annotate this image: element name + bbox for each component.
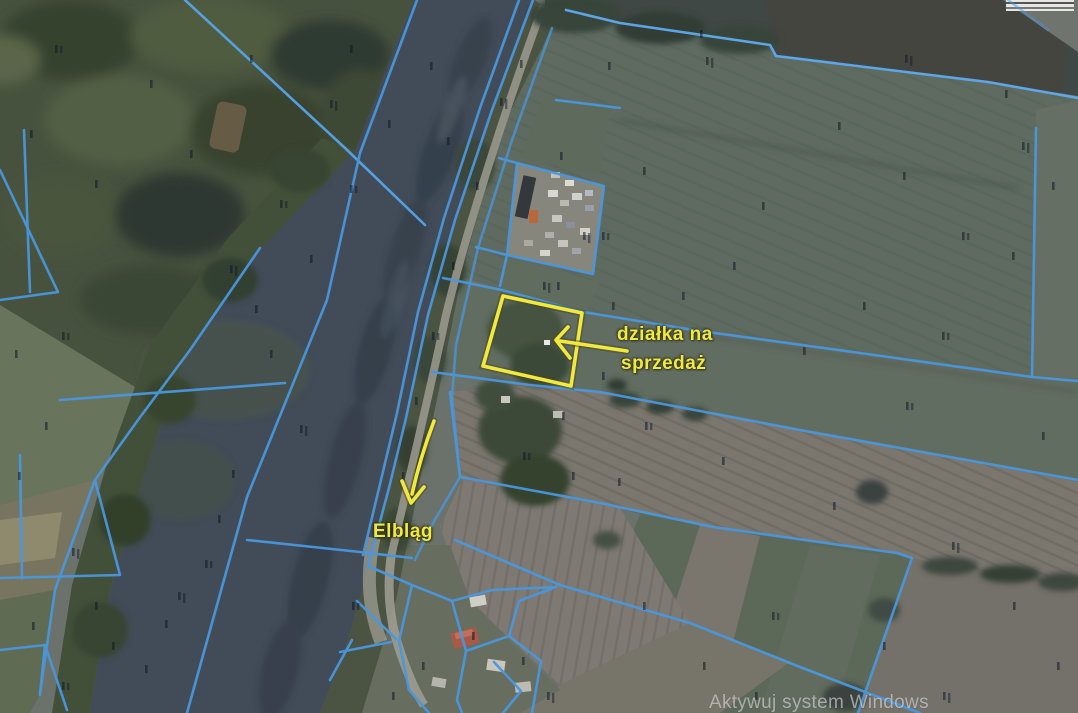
parcel-label-line1: działka na <box>617 320 713 349</box>
map-viewport[interactable]: działka na sprzedaż Elbląg Aktywuj syste… <box>0 0 1078 713</box>
city-label: Elbląg <box>373 517 433 546</box>
satellite-map <box>0 0 1078 713</box>
parcel-for-sale-label: działka na sprzedaż <box>617 320 713 378</box>
windows-activation-watermark: Aktywuj system Windows <box>709 692 929 713</box>
parcel-label-line2: sprzedaż <box>617 349 713 378</box>
